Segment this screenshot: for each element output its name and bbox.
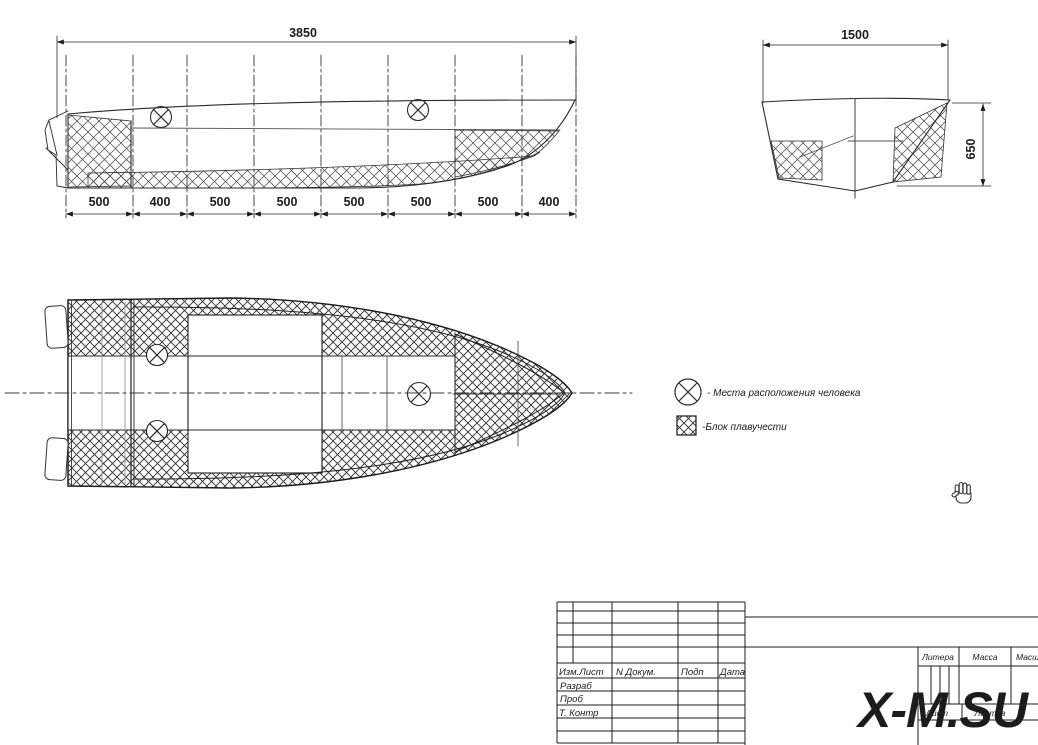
tb-data: Дата	[719, 667, 745, 678]
seg-dim: 500	[478, 195, 499, 209]
legend-person-label: - Места расположения человека	[707, 388, 861, 399]
seg-dim: 400	[150, 195, 171, 209]
seg-dim: 500	[344, 195, 365, 209]
tb-masshtab: Масштаб	[1016, 652, 1038, 662]
seg-dim: 500	[411, 195, 432, 209]
motor-mount-bottom	[45, 437, 69, 480]
section-buoyancy-left	[771, 141, 822, 180]
seg-dim: 500	[277, 195, 298, 209]
tb-prov: Проб	[560, 694, 583, 705]
person-symbol-5	[408, 383, 431, 406]
dim-650-value: 650	[964, 139, 978, 160]
dim-1500-value: 1500	[841, 28, 869, 42]
tb-podp: Подп	[681, 667, 704, 678]
person-symbol-4	[147, 421, 168, 442]
dim-3850-value: 3850	[289, 26, 317, 40]
legend-buoyancy-swatch	[677, 416, 696, 435]
tb-izm-list: Изм.Лист	[559, 667, 604, 678]
tb-t-kontr: Т. Контр	[559, 708, 598, 719]
tb-litera: Литера	[921, 652, 954, 662]
watermark: X-M.SU	[855, 682, 1030, 738]
seg-dim: 500	[89, 195, 110, 209]
seg-dim: 500	[210, 195, 231, 209]
tb-massa: Масса	[972, 652, 997, 662]
legend-buoyancy-label: -Блок плавучести	[702, 422, 787, 433]
tb-razrab: Разраб	[560, 681, 592, 692]
person-symbol-3	[147, 345, 168, 366]
tb-n-dokum: N Докум.	[616, 667, 656, 678]
seg-dim: 400	[539, 195, 560, 209]
boat-technical-drawing: 3850 500 400 500 500 500 500 500 400	[0, 0, 1038, 745]
cockpit-opening	[188, 315, 322, 473]
motor-mount-top	[45, 305, 69, 348]
